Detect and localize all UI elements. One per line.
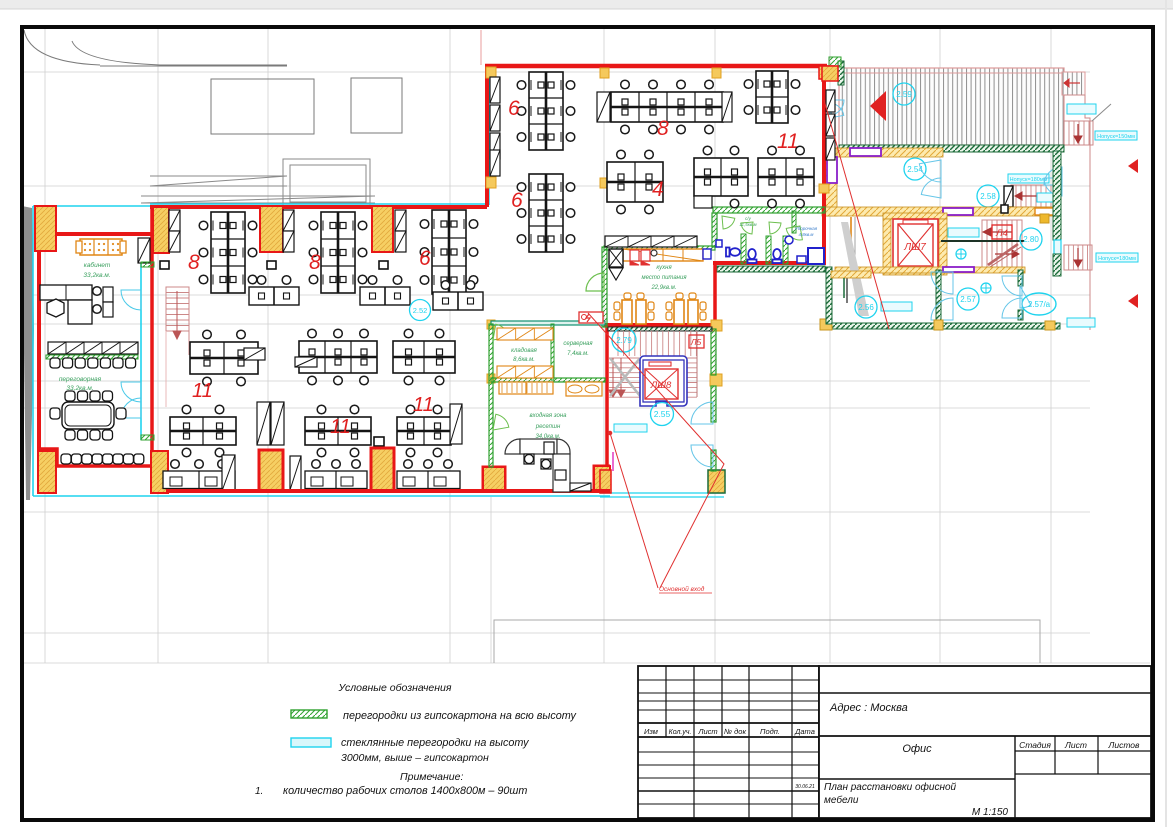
svg-text:22,9кв.м.: 22,9кв.м. (650, 285, 676, 291)
svg-text:место питания: место питания (641, 275, 687, 281)
svg-text:Нопуск=180мм: Нопуск=180мм (1010, 177, 1048, 183)
svg-text:2.52: 2.52 (413, 306, 428, 315)
svg-text:План расстановки офисной: План расстановки офисной (824, 781, 957, 793)
svg-text:4,8кв.м: 4,8кв.м (798, 232, 813, 237)
svg-text:М 1:150: М 1:150 (972, 807, 1009, 818)
svg-text:перегородки из гипсокартона на: перегородки из гипсокартона на всю высот… (343, 710, 576, 722)
svg-text:Офис: Офис (902, 743, 932, 755)
svg-text:11: 11 (192, 380, 213, 402)
svg-text:стеклянные перегородки на высо: стеклянные перегородки на высоту (341, 737, 529, 749)
svg-text:Основной вход: Основной вход (659, 585, 705, 593)
svg-text:серверная: серверная (563, 341, 593, 347)
svg-text:8: 8 (657, 117, 669, 140)
svg-text:8,6кв.м.: 8,6кв.м. (513, 357, 535, 363)
svg-text:Адрес : Москва: Адрес : Москва (829, 702, 908, 714)
svg-text:2.79: 2.79 (616, 336, 632, 345)
svg-text:Примечание:: Примечание: (400, 771, 463, 783)
svg-text:6: 6 (508, 97, 520, 120)
svg-text:2.56: 2.56 (858, 303, 874, 312)
svg-text:4: 4 (652, 178, 664, 201)
svg-text:11,5кв.м: 11,5кв.м (739, 222, 756, 227)
svg-text:мебели: мебели (824, 794, 859, 806)
svg-text:Листов: Листов (1108, 740, 1141, 750)
svg-text:Лист: Лист (697, 727, 717, 736)
svg-text:Стадия: Стадия (1019, 740, 1051, 750)
svg-text:с/у: с/у (745, 216, 752, 221)
svg-text:Условные обозначения: Условные обозначения (338, 682, 452, 694)
svg-text:Кол.уч.: Кол.уч. (669, 729, 692, 736)
svg-text:7,4кв.м.: 7,4кв.м. (567, 351, 589, 357)
svg-text:2.55: 2.55 (654, 409, 671, 419)
svg-text:2.57/а: 2.57/а (1028, 300, 1051, 309)
svg-text:2.57: 2.57 (960, 295, 976, 304)
svg-text:Подп.: Подп. (760, 727, 780, 736)
svg-text:2.59: 2.59 (896, 90, 912, 99)
svg-text:кабинет: кабинет (84, 261, 111, 269)
svg-text:Нопуск=180мм: Нопуск=180мм (1098, 256, 1136, 262)
svg-text:30.06.21: 30.06.21 (795, 784, 815, 790)
svg-text:8: 8 (309, 251, 321, 274)
svg-text:1.: 1. (255, 786, 263, 797)
svg-text:2.80: 2.80 (1023, 235, 1039, 244)
svg-text:Л5: Л5 (690, 337, 702, 347)
svg-text:Уборочная: Уборочная (795, 226, 818, 231)
svg-text:11: 11 (413, 394, 434, 416)
svg-text:Дата: Дата (794, 727, 815, 736)
svg-text:входная зона: входная зона (530, 413, 568, 419)
svg-text:Л4: Л4 (995, 228, 1008, 239)
svg-text:11: 11 (330, 416, 351, 438)
svg-text:ЛШ7: ЛШ7 (903, 242, 926, 253)
svg-text:Лист: Лист (1064, 740, 1087, 750)
svg-text:переговорная: переговорная (59, 376, 102, 383)
svg-text:кладовая: кладовая (511, 348, 538, 354)
svg-text:6: 6 (419, 247, 431, 270)
svg-text:6: 6 (511, 189, 523, 212)
svg-text:Нопуск=150мм: Нопуск=150мм (1097, 134, 1135, 140)
svg-text:кухня: кухня (656, 265, 672, 271)
svg-text:Изм: Изм (644, 727, 658, 736)
svg-text:ресепшн: ресепшн (535, 424, 561, 430)
svg-text:количество рабочих столов 1400: количество рабочих столов 1400х800м – 90… (283, 785, 527, 797)
svg-text:2.58: 2.58 (980, 192, 996, 201)
svg-text:33,2кв.м.: 33,2кв.м. (83, 272, 110, 279)
svg-text:№ док: № док (724, 727, 747, 736)
svg-text:3000мм, выше – гипсокартон: 3000мм, выше – гипсокартон (341, 752, 489, 764)
svg-text:8: 8 (188, 251, 200, 274)
